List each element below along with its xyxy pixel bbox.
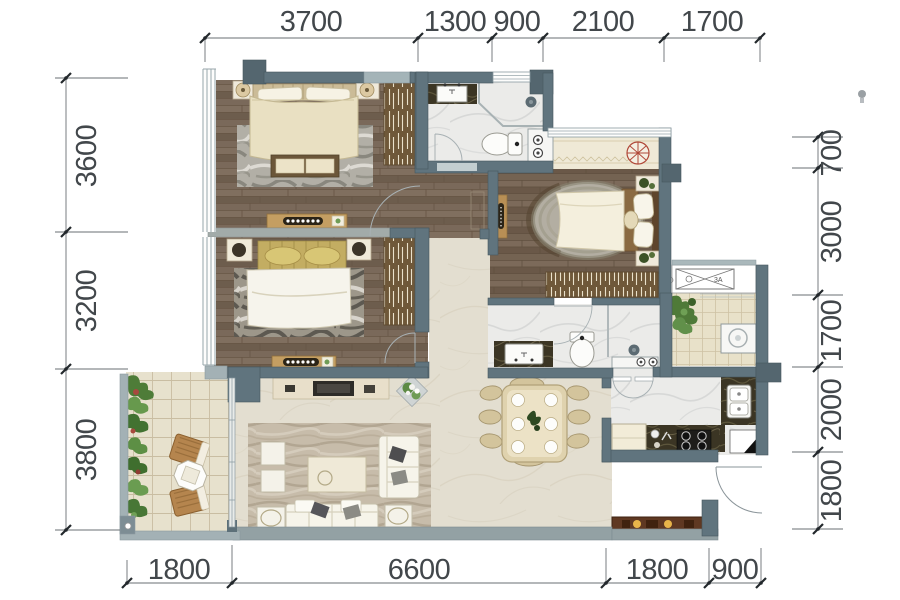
svg-text:6600: 6600 bbox=[388, 554, 451, 586]
svg-text:3700: 3700 bbox=[280, 6, 343, 38]
svg-text:3000: 3000 bbox=[816, 201, 848, 264]
svg-text:3A: 3A bbox=[714, 277, 723, 284]
svg-text:1700: 1700 bbox=[816, 300, 848, 363]
svg-text:1300: 1300 bbox=[424, 6, 487, 38]
svg-text:1800: 1800 bbox=[148, 554, 211, 586]
svg-text:900: 900 bbox=[494, 6, 541, 38]
svg-text:2100: 2100 bbox=[572, 6, 635, 38]
svg-text:3200: 3200 bbox=[71, 270, 103, 333]
svg-text:1800: 1800 bbox=[626, 554, 689, 586]
svg-text:2000: 2000 bbox=[816, 379, 848, 442]
svg-text:1700: 1700 bbox=[681, 6, 744, 38]
svg-text:900: 900 bbox=[712, 554, 759, 586]
svg-text:700: 700 bbox=[816, 130, 848, 177]
svg-text:1800: 1800 bbox=[816, 460, 848, 523]
svg-text:3800: 3800 bbox=[71, 419, 103, 482]
svg-text:3600: 3600 bbox=[71, 125, 103, 188]
